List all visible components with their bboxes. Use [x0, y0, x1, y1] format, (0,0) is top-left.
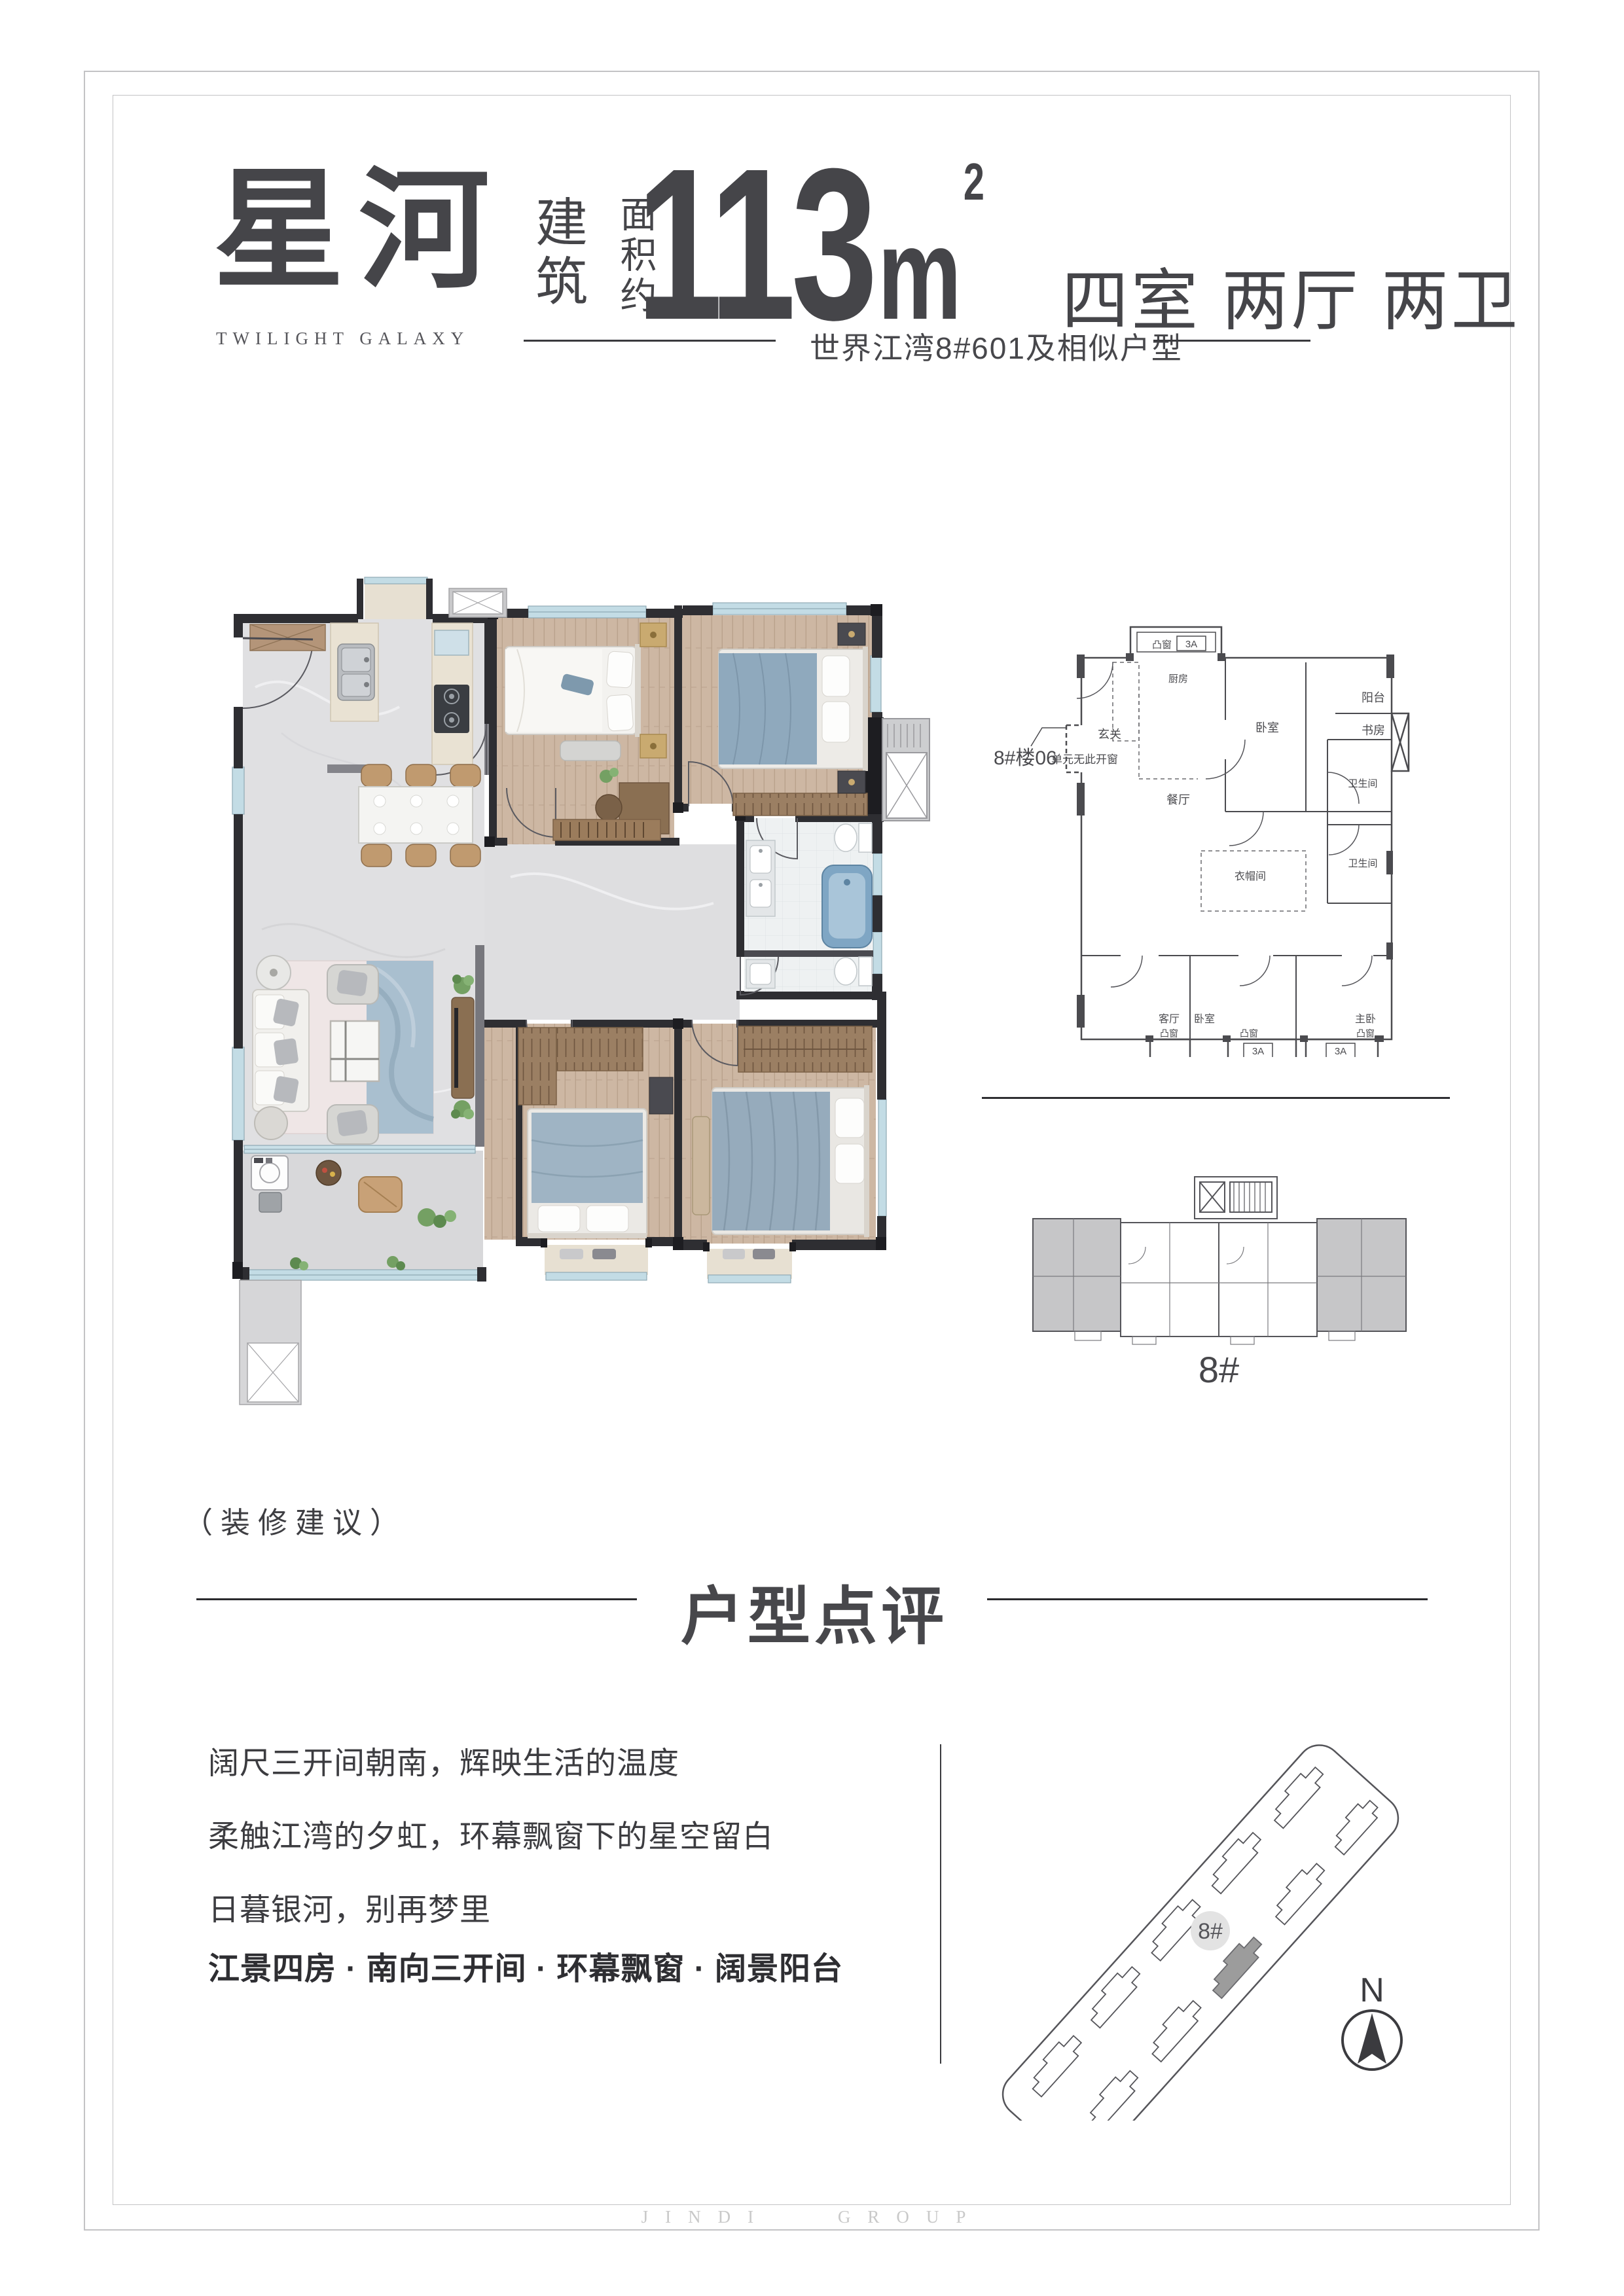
- key-plan-label: 8#: [1199, 1349, 1239, 1388]
- review-heading: 户型点评: [681, 1566, 948, 1657]
- building-key-plan: 8#: [1018, 1165, 1417, 1388]
- compass-n-label: N: [1360, 1971, 1384, 2009]
- label-bay-b1: 凸窗: [1160, 1028, 1178, 1039]
- utility-basin: [259, 1193, 281, 1212]
- toilet: [835, 823, 872, 852]
- label-entry: 玄关: [1098, 728, 1121, 741]
- double-sink: [338, 644, 374, 700]
- sofa: [253, 990, 309, 1111]
- toilet: [835, 957, 872, 986]
- bench: [693, 1117, 710, 1215]
- label-balcony: 阳台: [1362, 691, 1385, 704]
- right-column-divider: [982, 1097, 1450, 1099]
- area-value: 113: [636, 156, 873, 333]
- subtitle: 世界江湾8#601及相似户型: [810, 325, 1183, 368]
- bathtub: [822, 865, 872, 948]
- page-title: 星河: [213, 162, 504, 300]
- label-living: 客厅: [1159, 1013, 1180, 1025]
- gas-stove: [434, 685, 469, 733]
- subtitle-rule-left: [524, 340, 776, 342]
- ac-code-b2: 3A: [1335, 1046, 1346, 1057]
- label-bath1: 卫生间: [1348, 778, 1377, 789]
- ac-code-b1: 3A: [1252, 1046, 1264, 1057]
- elevator-shaft: [882, 719, 929, 821]
- flyer-page: 星河 TWILIGHT GALAXY 建筑 面积约 113 m 2 四室 两厅 …: [0, 0, 1624, 2296]
- ac-code-boxes: 3A 3A 3A: [1177, 636, 1355, 1057]
- review-highlight: 江景四房 · 南向三开间 · 环幕飘窗 · 阔景阳台: [208, 1943, 843, 1988]
- label-bath2: 卫生间: [1348, 858, 1377, 869]
- area-number: 113 m 2: [636, 156, 984, 333]
- area-label-col1: 建筑: [519, 195, 595, 317]
- label-master: 主卧: [1355, 1013, 1376, 1025]
- cad-callout-note: 单元无此开窗: [1051, 753, 1118, 766]
- north-compass: N: [1343, 1971, 1401, 2070]
- wardrobe: [518, 1028, 556, 1105]
- bench: [560, 741, 621, 761]
- svg-text:8#: 8#: [1198, 1919, 1223, 1944]
- bookshelf: [553, 819, 660, 840]
- review-line-3: 日暮银河，别再梦里: [208, 1884, 491, 1929]
- label-bedroom2: 卧室: [1255, 721, 1279, 734]
- cad-floor-plan: 8#楼06 单元无此开窗 凸窗 厨房 玄关 餐厅 卧室 书房 阳台 卫生间 卫生…: [979, 612, 1424, 1057]
- ac-platform-bottom: [240, 1280, 301, 1405]
- ac-platform-top: [449, 588, 507, 617]
- ac-code-top: 3A: [1185, 639, 1197, 650]
- cad-room-labels: 凸窗 厨房 玄关 餐厅 卧室 书房 阳台 卫生间 卫生间 衣帽间 客厅 卧室 主…: [1098, 636, 1385, 1057]
- review-line-2: 柔触江湾的夕虹，环幕飘窗下的星空留白: [208, 1811, 774, 1856]
- area-unit: m: [878, 222, 962, 327]
- label-bay-b2: 凸窗: [1240, 1028, 1258, 1039]
- label-bedroom4: 卧室: [1194, 1013, 1215, 1025]
- page-title-en: TWILIGHT GALAXY: [216, 329, 469, 349]
- review-line-1: 阔尺三开间朝南，辉映生活的温度: [208, 1738, 679, 1783]
- balcony-table: [316, 1160, 341, 1185]
- tv-console: [452, 997, 474, 1098]
- side-unit: [649, 1077, 673, 1114]
- wardrobe: [556, 1028, 643, 1071]
- label-kitchen: 厨房: [1168, 673, 1188, 685]
- coffee-table: [331, 1021, 379, 1081]
- decor-note: （装修建议）: [183, 1499, 407, 1541]
- review-rule-left: [196, 1598, 637, 1600]
- side-table: [255, 1107, 287, 1139]
- label-bay-top: 凸窗: [1152, 639, 1172, 651]
- label-study: 书房: [1362, 724, 1385, 737]
- subtitle-rule-right: [1153, 340, 1310, 342]
- washer: [251, 1156, 288, 1190]
- entry-door-leaf: [243, 638, 313, 639]
- label-dining: 餐厅: [1166, 793, 1190, 806]
- area-exponent: 2: [964, 152, 984, 212]
- site-plan: 8# N: [949, 1702, 1460, 2121]
- footer-watermark: JINDI GROUP: [0, 2207, 1624, 2227]
- cad-callout-code: 8#楼06: [994, 747, 1057, 769]
- wardrobe: [733, 793, 867, 816]
- review-vertical-divider: [940, 1744, 941, 2064]
- dining-set: [359, 764, 480, 867]
- label-bay-b3: 凸窗: [1356, 1028, 1375, 1039]
- desk-chair: [596, 795, 622, 821]
- label-cloak: 衣帽间: [1235, 870, 1266, 882]
- review-rule-right: [987, 1598, 1428, 1600]
- rendered-floor-plan: [229, 560, 943, 1417]
- site-building-badge: 8#: [1191, 1911, 1230, 1950]
- small-appliance: [435, 630, 469, 655]
